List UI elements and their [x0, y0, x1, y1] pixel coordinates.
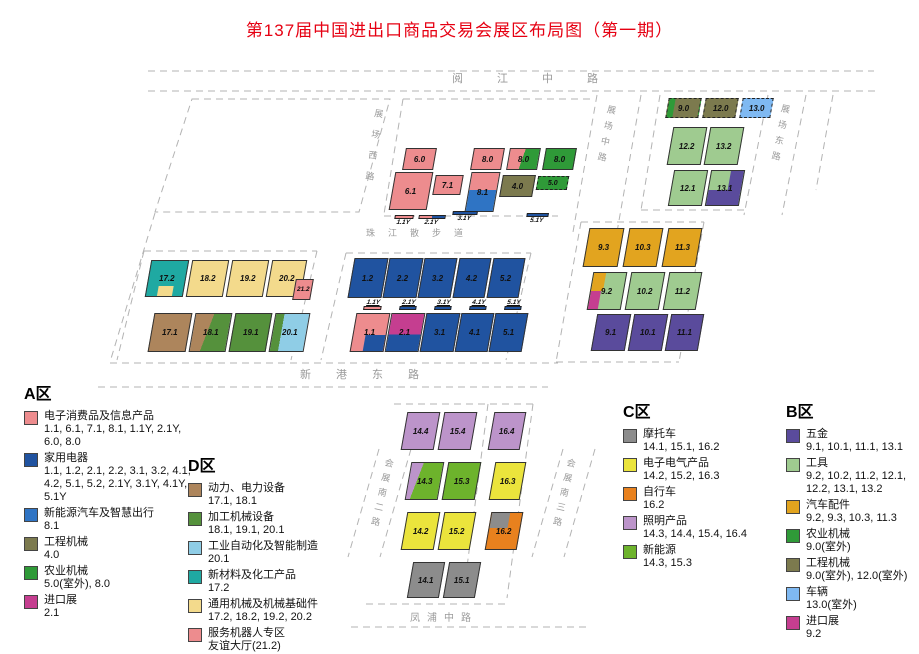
hall-block-12.0: 12.0: [702, 98, 739, 118]
hall-label: 4.1: [469, 328, 480, 337]
legend-text: 工程机械9.0(室外), 12.0(室外): [806, 557, 907, 583]
legend-text: 摩托车14.1, 15.1, 16.2: [643, 428, 719, 454]
hall-block-8.0: 8.0: [542, 148, 577, 170]
hall-label: 14.2: [413, 527, 429, 536]
hall-label: 15.4: [450, 427, 466, 436]
legend-hall-numbers: 4.0: [44, 549, 88, 562]
legend-hall-numbers: 5.0(室外), 8.0: [44, 578, 110, 591]
hall-block-11.1: 11.1: [665, 314, 705, 351]
hall-block-9.3: 9.3: [583, 228, 625, 267]
legend-text: 农业机械9.0(室外): [806, 528, 851, 554]
legend-text: 进口展9.2: [806, 615, 839, 641]
legend-B区: B区五金9.1, 10.1, 11.1, 13.1工具9.2, 10.2, 11…: [786, 398, 918, 644]
legend-item: 电子电气产品14.2, 15.2, 16.3: [623, 457, 783, 483]
hall-label: 18.2: [200, 274, 216, 283]
legend-swatch: [623, 545, 637, 559]
hall-label: 11.1: [677, 328, 692, 337]
hall-label: 17.1: [162, 328, 178, 337]
legend-item: 汽车配件9.2, 9.3, 10.3, 11.3: [786, 499, 918, 525]
hall-block-1.1: 1.1: [350, 313, 391, 352]
legend-item: 工程机械4.0: [24, 536, 196, 562]
hall-label: 14.1: [418, 576, 434, 585]
legend-category-name: 服务机器人专区: [208, 627, 285, 640]
hall-label: 9.1: [605, 328, 616, 337]
hall-block-part: [588, 291, 601, 309]
hall-label: 21.2: [297, 286, 310, 293]
hall-label: 11.2: [675, 287, 690, 296]
legend-item: 工具9.2, 10.2, 11.2, 12.1, 12.2, 13.1, 13.…: [786, 457, 918, 496]
hall-bar-2.1Y: 2.1Y: [417, 215, 446, 226]
legend-swatch: [24, 537, 38, 551]
hall-block-11.3: 11.3: [662, 228, 703, 267]
hall-bar-strip: [363, 306, 382, 310]
legend-hall-numbers: 14.3, 15.3: [643, 557, 692, 570]
hall-block-part: [490, 513, 511, 528]
legend-text: 车辆13.0(室外): [806, 586, 857, 612]
hall-block-19.2: 19.2: [226, 260, 270, 297]
hall-label: 13.1: [717, 184, 733, 193]
hall-label: 16.2: [496, 527, 512, 536]
legend-item: 家用电器1.1, 1.2, 2.1, 2.2, 3.1, 3.2, 4.1, 4…: [24, 452, 196, 504]
legend-hall-numbers: 14.3, 14.4, 15.4, 16.4: [643, 528, 747, 541]
legend-swatch: [188, 599, 202, 613]
legend-hall-numbers: 9.2: [806, 628, 839, 641]
hall-label: 2.1: [399, 328, 410, 337]
hall-block-19.1: 19.1: [229, 313, 273, 352]
legend-swatch: [786, 529, 800, 543]
hall-label: 18.1: [203, 328, 219, 337]
hall-label: 19.2: [240, 274, 256, 283]
hall-block-16.4: 16.4: [488, 412, 527, 450]
hall-label: 1.1: [364, 328, 375, 337]
hall-bar-label: 3.1Y: [435, 299, 453, 306]
legend-swatch: [188, 628, 202, 642]
hall-bar-strip: [399, 306, 417, 310]
legend-text: 新能源汽车及智慧出行8.1: [44, 507, 154, 533]
hall-bar-label: 2.1Y: [417, 219, 445, 226]
legend-category-name: 进口展: [44, 594, 77, 607]
hall-label: 7.1: [442, 181, 453, 190]
legend-hall-numbers: 13.0(室外): [806, 599, 857, 612]
hall-label: 5.2: [500, 274, 511, 283]
hall-label: 13.2: [716, 142, 732, 151]
hall-bar-2.1Y: 2.1Y: [399, 299, 418, 310]
hall-block-9.0: 9.0: [665, 98, 702, 118]
legend-text: 电子电气产品14.2, 15.2, 16.3: [643, 457, 719, 483]
hall-label: 13.0: [749, 104, 765, 113]
hall-block-13.1: 13.1: [705, 170, 745, 206]
legend-text: 服务机器人专区友谊大厅(21.2): [208, 627, 285, 653]
legend-category-name: 家用电器: [44, 452, 196, 465]
hall-block-11.2: 11.2: [663, 272, 703, 310]
legend-item: 新能源汽车及智慧出行8.1: [24, 507, 196, 533]
hall-block-18.1: 18.1: [189, 313, 233, 352]
hall-block-6.1: 6.1: [389, 172, 434, 210]
hall-block-14.3: 14.3: [405, 462, 445, 500]
legend-category-name: 农业机械: [44, 565, 110, 578]
legend-hall-numbers: 8.1: [44, 520, 154, 533]
hall-label: 5.0: [548, 180, 558, 187]
hall-bar-label: 1.1Y: [393, 219, 413, 226]
legend-title: C区: [623, 398, 783, 422]
legend-text: 通用机械及机械基础件17.2, 18.2, 19.2, 20.2: [208, 598, 318, 624]
legend-swatch: [786, 429, 800, 443]
hall-label: 14.3: [417, 477, 433, 486]
legend-swatch: [24, 508, 38, 522]
legend-swatch: [786, 616, 800, 630]
hall-block-10.3: 10.3: [623, 228, 664, 267]
hall-block-2.1: 2.1: [385, 313, 426, 352]
hall-bar-4.1Y: 4.1Y: [469, 299, 488, 310]
legend-item: 工程机械9.0(室外), 12.0(室外): [786, 557, 918, 583]
hall-label: 20.2: [279, 274, 295, 283]
legend-hall-numbers: 友谊大厅(21.2): [208, 640, 285, 653]
legend-hall-numbers: 14.2, 15.2, 16.3: [643, 470, 719, 483]
legend-swatch: [24, 411, 38, 425]
hall-label: 12.1: [680, 184, 696, 193]
legend-text: 农业机械5.0(室外), 8.0: [44, 565, 110, 591]
hall-block-12.1: 12.1: [668, 170, 708, 206]
legend-swatch: [786, 500, 800, 514]
hall-block-14.1: 14.1: [407, 562, 445, 598]
legend-text: 汽车配件9.2, 9.3, 10.3, 11.3: [806, 499, 897, 525]
legend-hall-numbers: 17.1, 18.1: [208, 495, 285, 508]
legend-category-name: 工程机械: [44, 536, 88, 549]
legend-item: 农业机械9.0(室外): [786, 528, 918, 554]
legend-hall-numbers: 18.1, 19.1, 20.1: [208, 524, 284, 537]
hall-label: 9.3: [598, 243, 609, 252]
legend-category-name: 工业自动化及智能制造: [208, 540, 318, 553]
hall-block-15.2: 15.2: [438, 512, 477, 550]
hall-bar-strip: [434, 306, 452, 310]
hall-block-6.0: 6.0: [402, 148, 437, 170]
hall-block-10.2: 10.2: [625, 272, 666, 310]
hall-block-part: [363, 335, 386, 351]
legend-D区: D区动力、电力设备17.1, 18.1加工机械设备18.1, 19.1, 20.…: [188, 452, 380, 654]
legend-hall-numbers: 9.1, 10.1, 11.1, 13.1: [806, 441, 903, 454]
hall-label: 9.0: [678, 104, 689, 113]
hall-bar-1.1Y: 1.1Y: [393, 215, 414, 226]
legend-swatch: [188, 570, 202, 584]
legend-hall-numbers: 9.2, 10.2, 11.2, 12.1, 12.2, 13.1, 13.2: [806, 470, 918, 496]
legend-category-name: 新材料及化工产品: [208, 569, 296, 582]
legend-category-name: 加工机械设备: [208, 511, 284, 524]
hall-label: 12.0: [713, 104, 729, 113]
hall-block-3.2: 3.2: [417, 258, 457, 298]
hall-label: 14.4: [413, 427, 429, 436]
hall-label: 8.0: [554, 155, 565, 164]
legend-text: 动力、电力设备17.1, 18.1: [208, 482, 285, 508]
legend-title: A区: [24, 380, 196, 404]
hall-label: 15.1: [454, 576, 470, 585]
hall-block-15.4: 15.4: [438, 412, 478, 450]
hall-block-8.0: 8.0: [506, 148, 541, 170]
legend-text: 新能源14.3, 15.3: [643, 544, 692, 570]
legend-text: 家用电器1.1, 1.2, 2.1, 2.2, 3.1, 3.2, 4.1, 4…: [44, 452, 196, 504]
legend-swatch: [786, 558, 800, 572]
hall-label: 15.2: [449, 527, 465, 536]
legend-swatch: [623, 487, 637, 501]
hall-block-16.2: 16.2: [485, 512, 524, 550]
legend-text: 五金9.1, 10.1, 11.1, 13.1: [806, 428, 903, 454]
legend-category-name: 新能源汽车及智慧出行: [44, 507, 154, 520]
legend-item: 进口展2.1: [24, 594, 196, 620]
hall-block-9.1: 9.1: [591, 314, 632, 351]
hall-label: 3.2: [432, 274, 443, 283]
hall-bar-label: 5.1Y: [525, 217, 548, 224]
hall-block-15.1: 15.1: [443, 562, 481, 598]
legend-text: 自行车16.2: [643, 486, 676, 512]
hall-block-18.2: 18.2: [186, 260, 230, 297]
legend-item: 通用机械及机械基础件17.2, 18.2, 19.2, 20.2: [188, 598, 380, 624]
hall-bar-label: 4.1Y: [470, 299, 488, 306]
legend-item: 加工机械设备18.1, 19.1, 20.1: [188, 511, 380, 537]
hall-label: 6.0: [414, 155, 425, 164]
legend-item: 车辆13.0(室外): [786, 586, 918, 612]
hall-bar-5.1Y: 5.1Y: [525, 213, 549, 224]
hall-bar-label: 3.1Y: [451, 215, 477, 222]
legend-category-name: 五金: [806, 428, 903, 441]
legend-C区: C区摩托车14.1, 15.1, 16.2电子电气产品14.2, 15.2, 1…: [623, 398, 783, 573]
road-label-凤浦中路: 凤浦中路: [410, 609, 478, 624]
hall-bar-strip: [469, 306, 487, 310]
legend-swatch: [623, 458, 637, 472]
legend-item: 新能源14.3, 15.3: [623, 544, 783, 570]
hall-block-7.1: 7.1: [432, 175, 464, 195]
hall-label: 16.4: [499, 427, 515, 436]
legend-item: 工业自动化及智能制造20.1: [188, 540, 380, 566]
hall-block-17.2: 17.2: [145, 260, 190, 297]
legend-title: B区: [786, 398, 918, 422]
hall-block-4.0: 4.0: [499, 175, 536, 197]
hall-label: 10.2: [637, 287, 653, 296]
legend-swatch: [188, 541, 202, 555]
legend-text: 电子消费品及信息产品1.1, 6.1, 7.1, 8.1, 1.1Y, 2.1Y…: [44, 410, 196, 449]
hall-label: 3.1: [434, 328, 445, 337]
legend-swatch: [24, 595, 38, 609]
legend-text: 工业自动化及智能制造20.1: [208, 540, 318, 566]
legend-item: 进口展9.2: [786, 615, 918, 641]
hall-label: 20.1: [282, 328, 298, 337]
legend-text: 工具9.2, 10.2, 11.2, 12.1, 12.2, 13.1, 13.…: [806, 457, 918, 496]
legend-category-name: 进口展: [806, 615, 839, 628]
legend-category-name: 自行车: [643, 486, 676, 499]
hall-label: 4.2: [466, 274, 477, 283]
hall-label: 15.3: [454, 477, 470, 486]
legend-text: 照明产品14.3, 14.4, 15.4, 16.4: [643, 515, 747, 541]
legend-swatch: [24, 566, 38, 580]
legend-swatch: [786, 587, 800, 601]
hall-block-13.0: 13.0: [739, 98, 774, 118]
legend-hall-numbers: 17.2: [208, 582, 296, 595]
hall-block-15.3: 15.3: [442, 462, 482, 500]
hall-block-8.0: 8.0: [470, 148, 505, 170]
legend-hall-numbers: 17.2, 18.2, 19.2, 20.2: [208, 611, 318, 624]
legend-hall-numbers: 20.1: [208, 553, 318, 566]
legend-hall-numbers: 2.1: [44, 607, 77, 620]
legend-A区: A区电子消费品及信息产品1.1, 6.1, 7.1, 8.1, 1.1Y, 2.…: [24, 380, 196, 623]
legend-text: 进口展2.1: [44, 594, 77, 620]
hall-bar-strip: [504, 306, 522, 310]
hall-bar-label: 1.1Y: [364, 299, 383, 306]
hall-block-5.1: 5.1: [489, 313, 529, 352]
hall-label: 10.3: [635, 243, 651, 252]
hall-label: 4.0: [512, 182, 523, 191]
hall-label: 10.1: [640, 328, 656, 337]
hall-block-part: [157, 286, 174, 297]
legend-hall-numbers: 16.2: [643, 499, 676, 512]
legend-item: 动力、电力设备17.1, 18.1: [188, 482, 380, 508]
hall-label: 12.2: [679, 142, 695, 151]
legend-swatch: [188, 483, 202, 497]
hall-block-12.2: 12.2: [667, 127, 708, 165]
hall-bar-label: 5.1Y: [505, 299, 523, 306]
legend-swatch: [786, 458, 800, 472]
hall-block-17.1: 17.1: [148, 313, 193, 352]
legend-category-name: 新能源: [643, 544, 692, 557]
hall-block-21.2: 21.2: [292, 279, 314, 300]
legend-hall-numbers: 9.2, 9.3, 10.3, 11.3: [806, 512, 897, 525]
hall-label: 11.3: [675, 243, 690, 252]
legend-category-name: 电子消费品及信息产品: [44, 410, 196, 423]
hall-block-13.2: 13.2: [704, 127, 745, 165]
hall-label: 8.0: [518, 155, 529, 164]
legend-hall-numbers: 1.1, 6.1, 7.1, 8.1, 1.1Y, 2.1Y, 6.0, 8.0: [44, 423, 196, 449]
hall-label: 19.1: [243, 328, 259, 337]
legend-item: 新材料及化工产品17.2: [188, 569, 380, 595]
hall-block-9.2: 9.2: [587, 272, 628, 310]
legend-text: 加工机械设备18.1, 19.1, 20.1: [208, 511, 284, 537]
hall-bar-label: 2.1Y: [400, 299, 418, 306]
hall-bar-3.1Y: 3.1Y: [451, 211, 478, 222]
legend-category-name: 照明产品: [643, 515, 747, 528]
legend-swatch: [623, 429, 637, 443]
hall-label: 1.2: [362, 274, 373, 283]
road-label-新港东路: 新港东路: [300, 366, 444, 382]
legend-category-name: 工程机械: [806, 557, 907, 570]
hall-block-3.1: 3.1: [420, 313, 461, 352]
legend-item: 摩托车14.1, 15.1, 16.2: [623, 428, 783, 454]
legend-hall-numbers: 1.1, 1.2, 2.1, 2.2, 3.1, 3.2, 4.1, 4.2, …: [44, 465, 196, 504]
hall-block-14.2: 14.2: [401, 512, 441, 550]
legend-category-name: 通用机械及机械基础件: [208, 598, 318, 611]
legend-hall-numbers: 9.0(室外): [806, 541, 851, 554]
legend-item: 电子消费品及信息产品1.1, 6.1, 7.1, 8.1, 1.1Y, 2.1Y…: [24, 410, 196, 449]
legend-item: 服务机器人专区友谊大厅(21.2): [188, 627, 380, 653]
hall-block-14.4: 14.4: [401, 412, 441, 450]
road-label-珠江散步道: 珠江散步道: [366, 226, 476, 239]
hall-label: 16.3: [500, 477, 516, 486]
hall-label: 6.1: [405, 187, 416, 196]
hall-bar-3.1Y: 3.1Y: [434, 299, 453, 310]
road-label-阅江中路: 阅江中路: [452, 70, 632, 86]
legend-category-name: 工具: [806, 457, 918, 470]
hall-label: 8.0: [482, 155, 493, 164]
legend-item: 农业机械5.0(室外), 8.0: [24, 565, 196, 591]
legend-title: D区: [188, 452, 380, 476]
legend-category-name: 农业机械: [806, 528, 851, 541]
legend-category-name: 动力、电力设备: [208, 482, 285, 495]
hall-label: 17.2: [159, 274, 175, 283]
fair-layout-map: 第137届中国进出口商品交易会展区布局图（第一期） 阅江中路珠江散步道新港东路凤…: [0, 0, 919, 654]
hall-block-5.0: 5.0: [536, 176, 569, 190]
legend-category-name: 汽车配件: [806, 499, 897, 512]
legend-item: 照明产品14.3, 14.4, 15.4, 16.4: [623, 515, 783, 541]
legend-hall-numbers: 14.1, 15.1, 16.2: [643, 441, 719, 454]
legend-hall-numbers: 9.0(室外), 12.0(室外): [806, 570, 907, 583]
legend-swatch: [623, 516, 637, 530]
hall-block-20.1: 20.1: [269, 313, 311, 352]
legend-text: 新材料及化工产品17.2: [208, 569, 296, 595]
legend-category-name: 电子电气产品: [643, 457, 719, 470]
hall-bar-5.1Y: 5.1Y: [504, 299, 523, 310]
legend-swatch: [188, 512, 202, 526]
hall-label: 2.2: [397, 274, 408, 283]
hall-label: 5.1: [503, 328, 514, 337]
legend-item: 自行车16.2: [623, 486, 783, 512]
hall-label: 9.2: [601, 287, 612, 296]
legend-swatch: [24, 453, 38, 467]
legend-category-name: 摩托车: [643, 428, 719, 441]
hall-block-10.1: 10.1: [628, 314, 669, 351]
hall-bar-1.1Y: 1.1Y: [363, 299, 383, 310]
legend-category-name: 车辆: [806, 586, 857, 599]
legend-text: 工程机械4.0: [44, 536, 88, 562]
legend-item: 五金9.1, 10.1, 11.1, 13.1: [786, 428, 918, 454]
hall-label: 8.1: [477, 188, 488, 197]
